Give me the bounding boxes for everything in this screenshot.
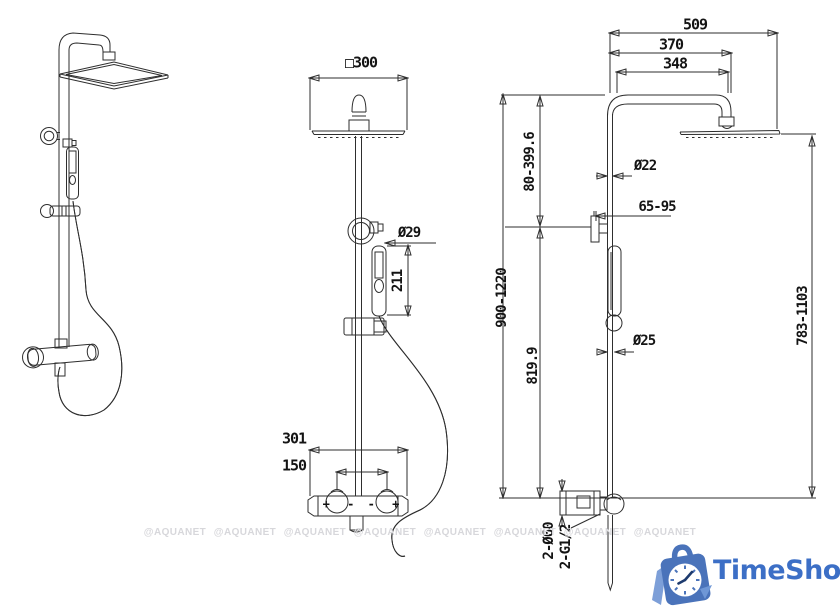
watermark: @AQUANET [210,527,280,538]
watermark: @AQUANET [630,527,700,538]
dim-arm-reach: 370 [659,38,683,53]
dim-riser-height: 819.9 [526,347,540,384]
dim-slider-diameter: Ø25 [633,334,655,348]
hand-shower-front [372,246,386,316]
dim-overall-depth: 509 [683,18,707,33]
dim-riser-diameter: Ø22 [634,159,656,173]
shower-hose-front [379,316,448,556]
rain-head-front [312,131,405,138]
dim-head-size: □300 [345,56,377,71]
dim-arm-length: 348 [663,57,687,72]
watermark: @AQUANET [490,527,560,538]
watermark: @AQUANET [280,527,350,538]
watermark: @AQUANET [560,527,630,538]
technical-drawing: □300 Ø29 211 301 150 + - - + 509 370 348… [0,0,840,614]
front-view [308,78,448,556]
dim-hand-shower-length: 211 [391,270,405,292]
rain-head-side [680,131,780,138]
slider-bracket-front [348,218,383,244]
timeshop-bag-clock-icon [652,541,714,611]
dim-head-to-base-height: 783-1103 [796,286,810,345]
right-handle-marks: - + [368,498,405,510]
timeshop-logo: TimeShop [652,541,838,611]
hand-shower [63,139,79,199]
dim-mixer-width: 301 [282,432,306,447]
dim-overall-height: 900-1220 [495,268,509,327]
dim-head-height-adjust: 80-399.6 [523,132,537,191]
dim-hand-shower-diameter: Ø29 [398,226,420,240]
dim-wall-bracket-depth: 65-95 [638,200,675,214]
watermark: @AQUANET [140,527,210,538]
lower-clamp [344,318,386,335]
watermark-row: @AQUANET @AQUANET @AQUANET @AQUANET @AQU… [140,527,700,538]
perspective-view [22,33,168,416]
rain-head [60,62,168,89]
watermark: @AQUANET [420,527,490,538]
side-view [499,33,816,590]
mixer-valve [22,339,100,376]
wall-bracket [41,128,61,145]
watermark: @AQUANET [350,527,420,538]
timeshop-wordmark: TimeShop [713,555,840,586]
left-handle-marks: + - [323,498,360,510]
hand-shower-side [606,246,622,331]
shower-system-lineart [0,0,840,614]
shower-hose [58,201,122,416]
mixer-valve-side [560,491,624,515]
dim-handle-spacing: 150 [282,459,306,474]
